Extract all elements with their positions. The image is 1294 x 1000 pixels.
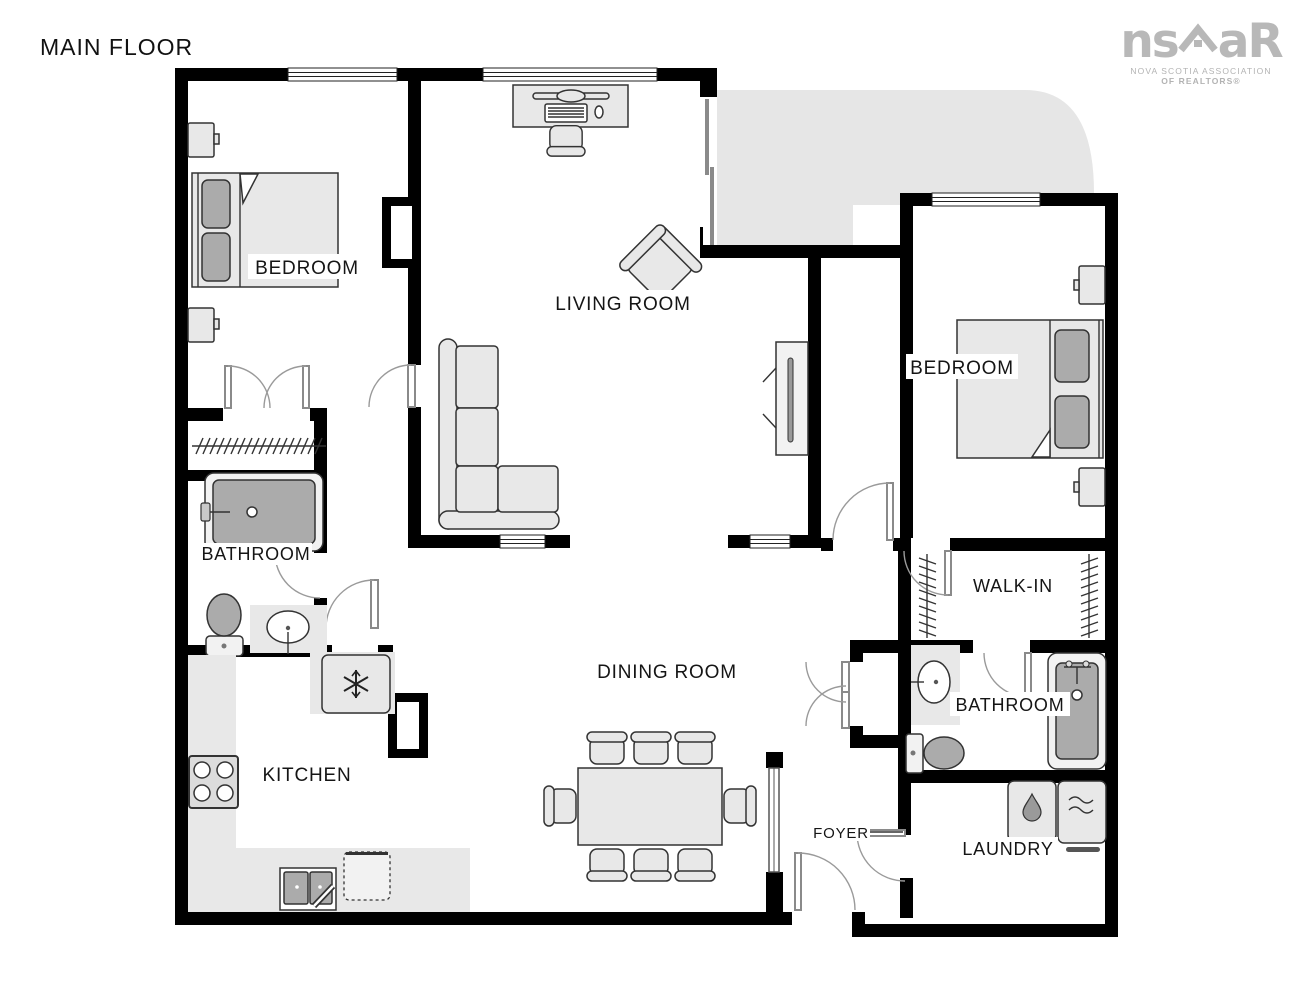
wall bbox=[728, 535, 750, 548]
nightstand bbox=[1074, 468, 1105, 506]
label-laundry: LAUNDRY bbox=[962, 839, 1053, 859]
wall bbox=[408, 81, 421, 197]
fridge bbox=[322, 655, 390, 713]
label-foyer: FOYER bbox=[813, 825, 869, 842]
dining-chair bbox=[675, 849, 715, 881]
foyer-closet-doors bbox=[806, 662, 849, 728]
wall bbox=[408, 407, 421, 548]
dining-chair bbox=[587, 732, 627, 764]
sectional-sofa bbox=[439, 339, 559, 529]
kitchen-sink bbox=[280, 868, 336, 910]
wall bbox=[1030, 640, 1118, 653]
kitchen-door bbox=[326, 580, 378, 628]
dining-chair bbox=[724, 786, 756, 826]
wall bbox=[821, 538, 833, 551]
page-title: MAIN FLOOR bbox=[40, 34, 193, 61]
dryer bbox=[1058, 781, 1106, 852]
wall bbox=[175, 408, 223, 421]
dining-room-furniture bbox=[544, 732, 756, 881]
label-walk-in: WALK-IN bbox=[973, 576, 1053, 596]
wall bbox=[1105, 193, 1118, 937]
house-icon bbox=[1177, 20, 1219, 58]
nightstand bbox=[1074, 266, 1105, 304]
wall bbox=[950, 538, 1118, 551]
glass-partition bbox=[769, 768, 779, 872]
dining-chair bbox=[675, 732, 715, 764]
bathroom-right-door bbox=[984, 653, 1031, 697]
wall bbox=[175, 912, 792, 925]
bedroom-right-furniture bbox=[957, 266, 1105, 506]
dining-chair bbox=[587, 849, 627, 881]
nsar-logo: ns aR NOVA SCOTIA ASSOCIATION OF REALTOR… bbox=[1116, 20, 1286, 86]
label-dining-room: DINING ROOM bbox=[597, 662, 737, 683]
dining-table bbox=[578, 768, 722, 845]
window bbox=[750, 535, 790, 548]
washer bbox=[1008, 781, 1056, 841]
entrance-door bbox=[795, 853, 855, 910]
wall bbox=[700, 245, 913, 258]
wall bbox=[408, 268, 421, 365]
wall bbox=[850, 735, 911, 748]
toilet bbox=[906, 734, 964, 773]
nightstand bbox=[188, 123, 219, 157]
office-chair bbox=[547, 126, 585, 156]
closet-double-door bbox=[225, 366, 309, 408]
wall bbox=[175, 68, 288, 81]
window bbox=[288, 68, 397, 81]
bed bbox=[957, 320, 1103, 458]
wall bbox=[314, 408, 327, 480]
label-bedroom-right: BEDROOM bbox=[910, 358, 1014, 379]
dishwasher bbox=[344, 852, 390, 900]
pantry-closet-interior bbox=[397, 702, 419, 749]
nightstand bbox=[188, 308, 219, 342]
bedroom-left-door bbox=[369, 365, 415, 407]
wall bbox=[852, 924, 1118, 937]
tv-console bbox=[763, 342, 808, 455]
window bbox=[500, 535, 545, 548]
wall bbox=[900, 878, 913, 918]
wall bbox=[408, 535, 500, 548]
wall bbox=[850, 653, 863, 662]
bedroom-right-door bbox=[833, 483, 893, 540]
logo-tagline-1: NOVA SCOTIA ASSOCIATION bbox=[1116, 66, 1286, 76]
stove bbox=[189, 756, 238, 808]
wall bbox=[850, 726, 863, 735]
label-bedroom-left: BEDROOM bbox=[255, 258, 359, 279]
dining-chair bbox=[631, 732, 671, 764]
wall bbox=[766, 872, 783, 915]
wall bbox=[808, 255, 821, 548]
bathtub bbox=[201, 473, 323, 551]
wall bbox=[766, 752, 783, 768]
wall bbox=[700, 68, 717, 97]
floor-plan-page: MAIN FLOOR ns aR NOVA SCOTIA ASSOCIATION… bbox=[0, 0, 1294, 1000]
dining-chair bbox=[544, 786, 576, 826]
wall bbox=[657, 68, 700, 81]
dining-chair bbox=[631, 849, 671, 881]
bedroom-left-furniture bbox=[188, 123, 338, 342]
window bbox=[932, 193, 1040, 206]
logo-text-ar: aR bbox=[1218, 24, 1282, 61]
label-living-room: LIVING ROOM bbox=[555, 294, 690, 315]
wall-notch bbox=[391, 206, 412, 259]
wall bbox=[545, 535, 570, 548]
label-bathroom-left: BATHROOM bbox=[201, 544, 310, 564]
wall bbox=[898, 551, 911, 835]
floor-plan-drawing: BEDROOM LIVING ROOM BEDROOM BATHROOM KIT… bbox=[0, 0, 1294, 1000]
label-kitchen: KITCHEN bbox=[263, 765, 352, 786]
wall bbox=[175, 68, 188, 925]
toilet bbox=[206, 594, 243, 656]
sink-vanity bbox=[250, 605, 327, 654]
wall bbox=[893, 538, 911, 551]
desk bbox=[513, 85, 628, 127]
window bbox=[483, 68, 657, 81]
label-bathroom-right: BATHROOM bbox=[955, 695, 1064, 715]
wall bbox=[397, 68, 483, 81]
closet-rod bbox=[192, 438, 326, 454]
sliding-door bbox=[703, 97, 717, 245]
logo-text-ns: ns bbox=[1120, 24, 1177, 61]
logo-tagline-2: OF REALTORS® bbox=[1116, 76, 1286, 86]
